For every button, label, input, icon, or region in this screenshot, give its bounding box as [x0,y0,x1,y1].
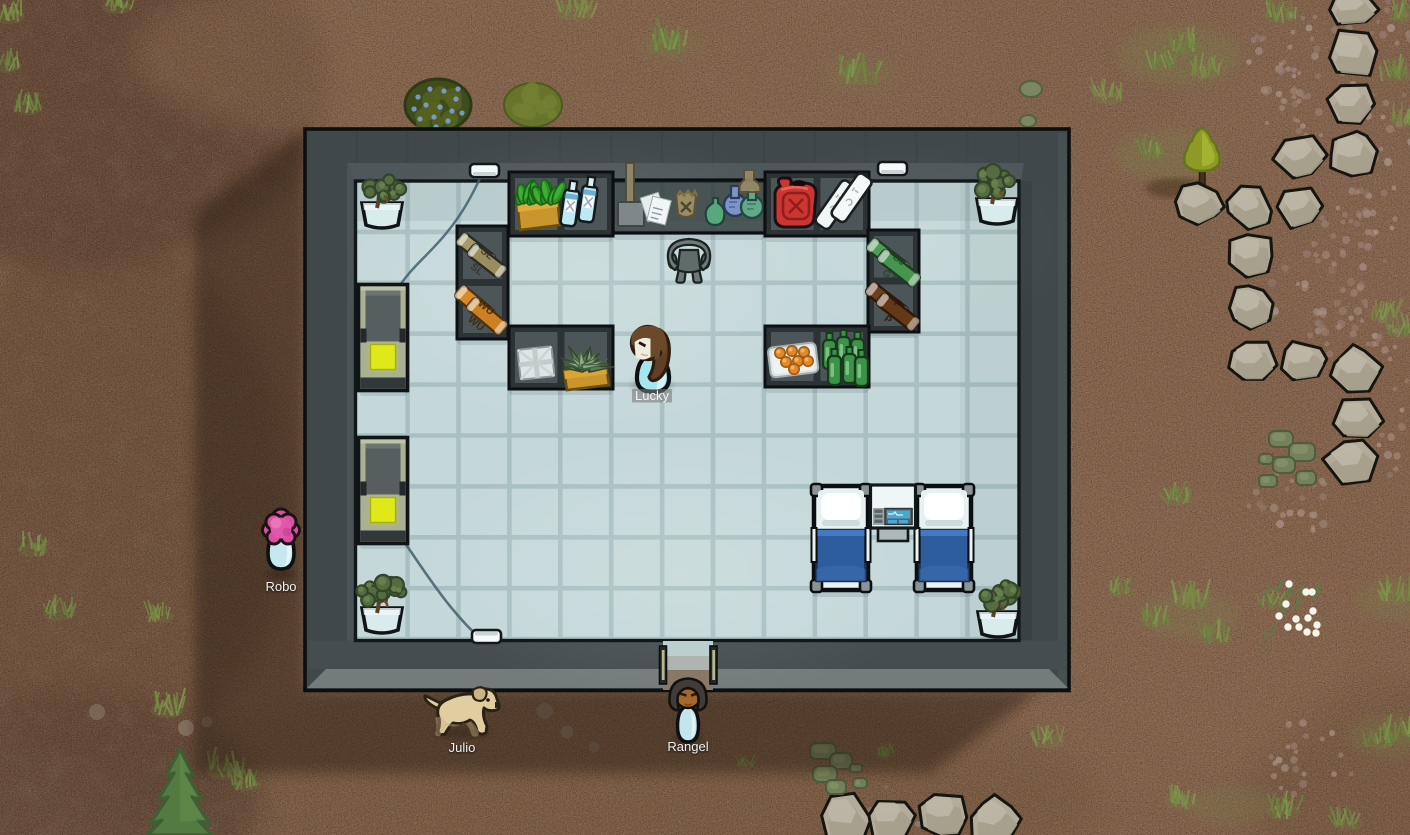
svg-text:Robo: Robo [265,579,296,594]
svg-text:Julio: Julio [449,740,476,755]
svg-text:Lucky: Lucky [635,388,669,403]
svg-text:Rangel: Rangel [667,739,708,754]
